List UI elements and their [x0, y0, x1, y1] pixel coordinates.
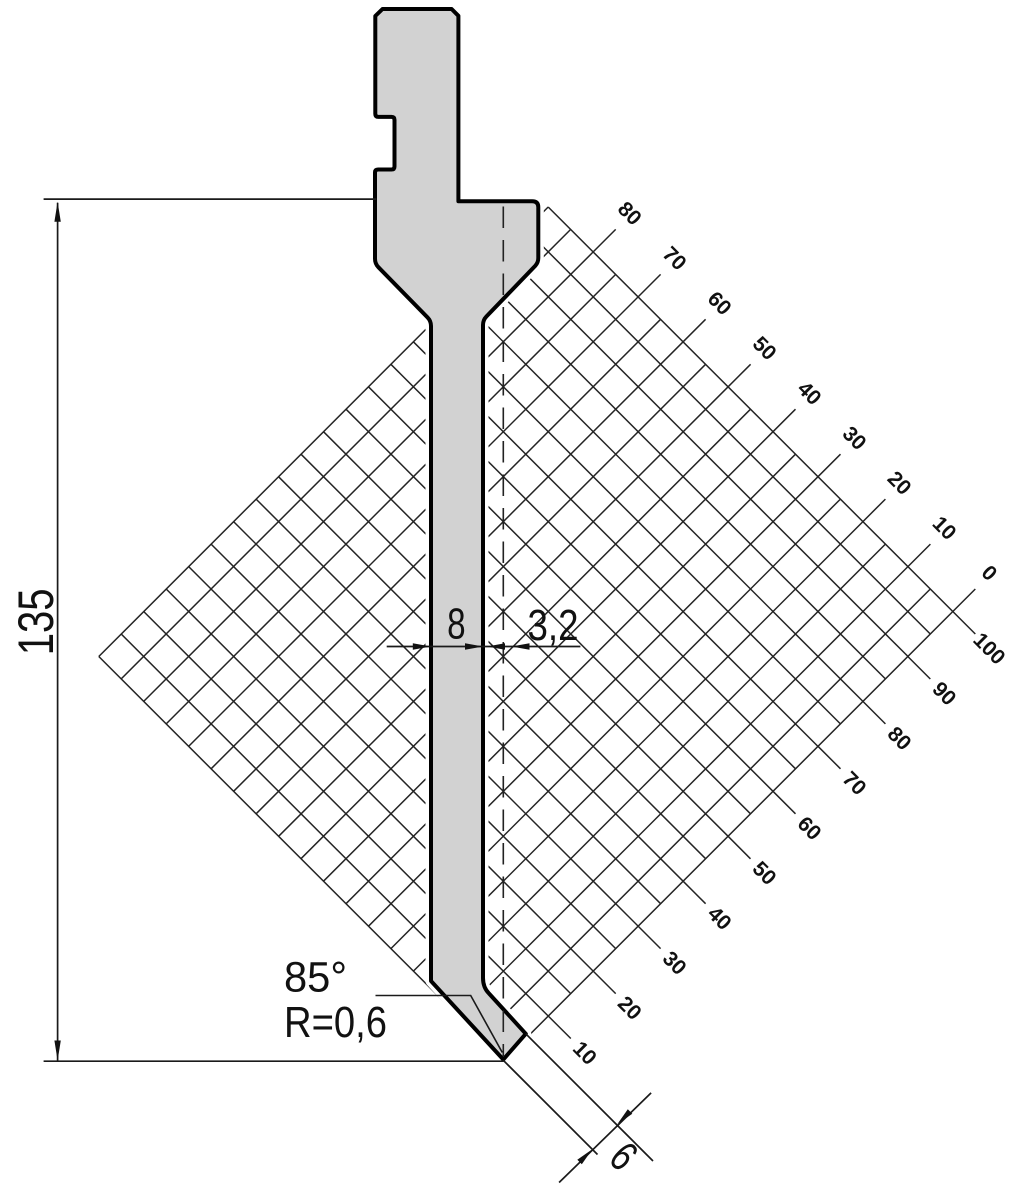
svg-text:R=0,6: R=0,6	[284, 999, 387, 1047]
svg-text:85°: 85°	[284, 953, 347, 1001]
svg-text:135: 135	[7, 588, 64, 655]
svg-text:8: 8	[447, 601, 466, 649]
svg-text:3,2: 3,2	[528, 602, 579, 650]
